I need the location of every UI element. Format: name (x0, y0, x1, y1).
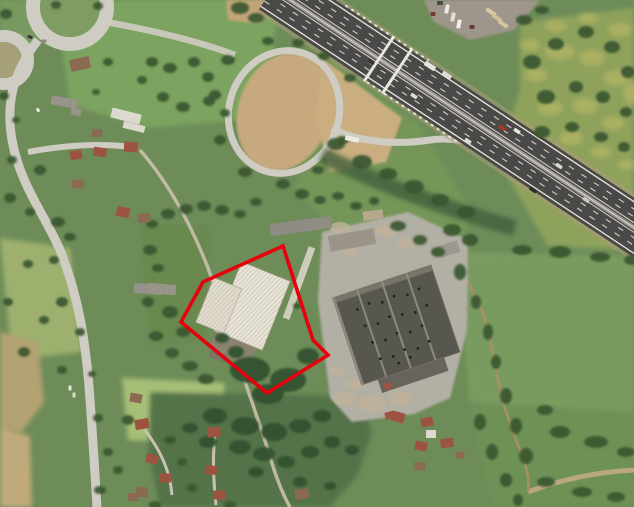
tree (500, 473, 512, 487)
tree (318, 52, 330, 60)
vehicle (69, 386, 72, 391)
tree (64, 233, 76, 241)
tree (215, 205, 229, 215)
tree (103, 58, 113, 66)
dry-patch (579, 50, 605, 66)
tree (51, 1, 61, 9)
tree (49, 256, 59, 264)
vehicle (437, 1, 443, 5)
tree (18, 347, 30, 357)
tree (103, 448, 113, 456)
tree (177, 458, 187, 466)
aerial-photo-canvas (0, 0, 634, 507)
tree (512, 245, 532, 255)
tree (164, 436, 176, 444)
tree (500, 388, 512, 404)
shrub (182, 423, 198, 433)
house-roof (124, 141, 139, 152)
shrub (228, 346, 244, 358)
shrub (301, 446, 319, 458)
tree (209, 90, 221, 100)
tree (113, 466, 123, 474)
tree (590, 252, 610, 262)
tree (220, 109, 230, 117)
tree (548, 38, 564, 50)
house-roof (93, 147, 107, 158)
tree (550, 426, 570, 438)
tree (565, 122, 579, 132)
tree (25, 208, 35, 216)
tree (516, 15, 532, 25)
tree (535, 6, 549, 14)
tree (474, 414, 486, 430)
house-roof (414, 462, 426, 471)
house-roof (205, 465, 218, 475)
house-roof (440, 438, 454, 449)
tree (231, 2, 249, 14)
tree (179, 204, 193, 214)
house-roof (128, 493, 138, 501)
dry-patch (559, 131, 583, 145)
tree (187, 484, 197, 492)
shrub (229, 440, 251, 454)
tree (262, 37, 274, 45)
house-roof (138, 213, 151, 223)
shrub (289, 419, 311, 433)
tree (596, 91, 610, 103)
tree (314, 196, 326, 204)
tree (457, 206, 475, 218)
tree (491, 355, 501, 369)
vehicle (73, 393, 76, 398)
tree (510, 418, 522, 434)
rubble-patch (329, 365, 343, 375)
shrub (261, 423, 287, 441)
tree (248, 13, 264, 23)
field-bottomleft-tan (0, 428, 32, 507)
house-roof (213, 491, 225, 500)
rubble-patch (346, 379, 362, 389)
tree (137, 76, 147, 84)
tree (221, 55, 235, 65)
house-roof (72, 180, 84, 189)
tree (75, 328, 85, 336)
tree (523, 55, 541, 69)
tree (146, 57, 158, 67)
tree (7, 156, 17, 164)
tree (312, 166, 324, 174)
dry-patch (545, 20, 567, 32)
field-mid-right (455, 252, 634, 412)
tree (369, 197, 379, 205)
tree (584, 436, 608, 448)
tree (537, 477, 555, 487)
house-roof (69, 150, 82, 161)
tree (197, 201, 211, 211)
house-roof (426, 430, 436, 438)
tree (165, 348, 179, 358)
tree (572, 487, 592, 497)
tree (34, 165, 46, 175)
tree (379, 168, 397, 180)
tree (122, 415, 134, 425)
house-roof (159, 474, 171, 483)
tree (39, 316, 49, 324)
tree (88, 371, 96, 377)
tree (344, 74, 356, 82)
tree (202, 72, 214, 82)
tree (182, 361, 198, 371)
vehicle (470, 25, 475, 29)
dry-patch (602, 116, 624, 130)
shrub (324, 482, 336, 490)
vehicle (42, 40, 47, 43)
dry-patch (520, 39, 540, 51)
tree (332, 192, 344, 200)
tree (620, 107, 632, 117)
tree (152, 264, 164, 272)
tree (214, 135, 226, 145)
tree (537, 405, 553, 415)
tree (454, 264, 466, 280)
tree (157, 92, 169, 102)
tree (198, 374, 214, 384)
house-roof (207, 426, 221, 437)
tree (93, 2, 103, 10)
rubble-patch (333, 392, 357, 406)
dry-patch (591, 146, 611, 158)
dry-patch (578, 13, 598, 23)
tree (0, 9, 12, 19)
tree (238, 167, 252, 177)
dry-patch (608, 23, 632, 37)
tree (352, 155, 372, 169)
tree (3, 298, 13, 306)
tree (483, 324, 493, 340)
shrub (293, 477, 307, 487)
tree (188, 57, 200, 67)
tree (431, 247, 445, 257)
tree (578, 26, 594, 38)
tree (390, 221, 406, 231)
tree (142, 297, 154, 307)
tree (56, 297, 68, 307)
tree (537, 90, 555, 104)
dry-patch (525, 68, 547, 82)
tree (462, 234, 478, 246)
tree (519, 448, 533, 464)
tree (607, 492, 625, 502)
tree (431, 194, 449, 206)
shrub (203, 408, 227, 424)
tree (534, 126, 550, 138)
tree (513, 494, 523, 506)
tree (471, 295, 481, 309)
rubble-patch (397, 237, 415, 249)
shrub (199, 436, 217, 448)
tree (443, 224, 461, 236)
shrub (313, 410, 331, 422)
shrub (248, 467, 264, 477)
tree (4, 193, 16, 203)
tree (292, 39, 304, 47)
dry-patch (572, 98, 598, 114)
tree (57, 366, 67, 374)
tree (618, 142, 630, 152)
tree (549, 246, 571, 258)
shrub (345, 445, 359, 455)
rubble-patch (358, 396, 386, 412)
tree (350, 202, 362, 210)
shrub (215, 333, 229, 343)
tree (161, 209, 175, 219)
tree (413, 235, 427, 245)
tree (295, 189, 309, 199)
rubble-patch (330, 222, 350, 234)
tree (149, 331, 163, 341)
tree (23, 260, 33, 268)
house-roof (92, 129, 102, 137)
rubble-patch (389, 392, 413, 406)
tree (51, 217, 65, 227)
tree (94, 486, 106, 494)
shrub (324, 436, 340, 448)
tree (404, 180, 424, 194)
shrub (253, 447, 275, 461)
satellite-image (0, 0, 634, 507)
tree (569, 81, 583, 93)
tree (594, 132, 608, 142)
tree (250, 198, 262, 206)
tree (92, 89, 100, 95)
tree (276, 179, 290, 189)
shrub (231, 417, 259, 435)
tree (143, 245, 157, 255)
tree (163, 63, 177, 73)
tree (234, 210, 246, 218)
tree (162, 306, 178, 318)
tree (486, 444, 498, 460)
tree (12, 117, 20, 123)
house-roof (456, 452, 465, 459)
vehicle (431, 12, 436, 16)
tree (176, 102, 190, 112)
shrub (277, 456, 295, 468)
tree (93, 414, 103, 422)
tree (604, 41, 620, 53)
